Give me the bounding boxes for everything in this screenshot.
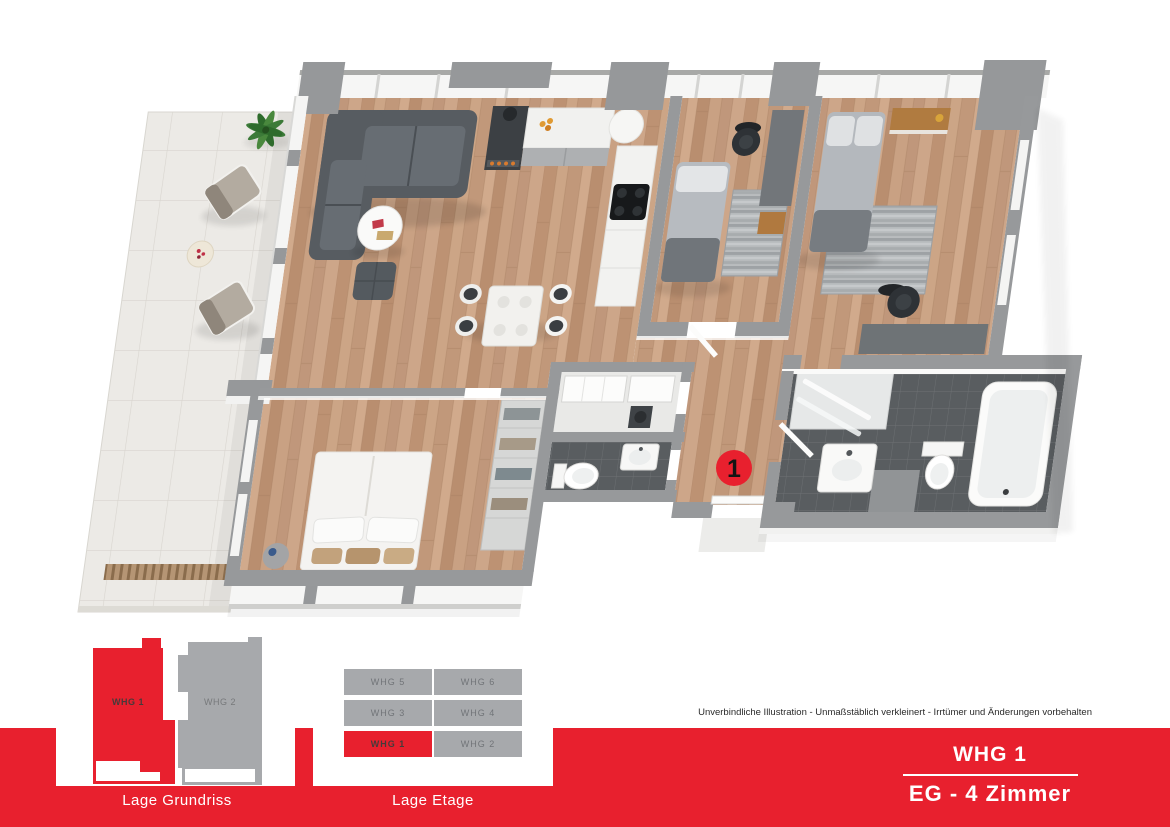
sink: [817, 444, 878, 492]
etage-cell-whg3: WHG 3: [344, 700, 432, 726]
toilet: [551, 463, 600, 489]
unit-whg2-cutout: [184, 768, 256, 783]
unit-title: WHG 1: [890, 743, 1090, 767]
unit-whg2-label: WHG 2: [204, 697, 236, 707]
desk: [858, 324, 988, 354]
etage-cell-whg4: WHG 4: [434, 700, 522, 726]
lage-etage-label: Lage Etage: [343, 792, 523, 809]
unit-whg2-notch: [178, 692, 188, 720]
unit-subtitle: EG - 4 Zimmer: [878, 781, 1102, 807]
title-divider: [903, 774, 1078, 776]
kitchen-counter: [523, 108, 615, 148]
etage-cell-whg1-active: WHG 1: [344, 731, 432, 757]
disclaimer-text: Unverbindliche Illustration - Unmaßstäbl…: [600, 707, 1092, 718]
unit-marker-badge: 1: [716, 450, 752, 486]
floor-level-grid: WHG 5 WHG 6 WHG 3 WHG 4 WHG 1 WHG 2: [344, 669, 522, 757]
etage-cell-whg6: WHG 6: [434, 669, 522, 695]
unit-whg2-shape: [178, 637, 262, 785]
etage-cell-whg2: WHG 2: [434, 731, 522, 757]
nightstand: [757, 212, 786, 234]
entrance-porch: [698, 518, 769, 552]
cooktop: [609, 184, 650, 220]
washing-machine: [628, 406, 653, 428]
entrance-door: [711, 496, 766, 504]
floorplan-sheet: 1 WHG 1 WHG 2 WHG 5 WHG 6 WHG 3 WHG 4 WH…: [0, 0, 1170, 827]
unit-marker-number: 1: [727, 455, 741, 483]
partition: [868, 470, 920, 512]
double-bed: [300, 452, 433, 570]
location-plan-diagram: WHG 1 WHG 2: [85, 630, 270, 792]
red-banner-pillar: [295, 728, 313, 786]
sideboard: [889, 108, 951, 134]
etage-cell-whg5: WHG 5: [344, 669, 432, 695]
lage-grundriss-label: Lage Grundriss: [87, 792, 267, 809]
ottoman: [352, 262, 397, 300]
floor-plan-rendering: 1: [0, 0, 1170, 660]
door-mat: [103, 564, 227, 580]
sink: [620, 444, 660, 470]
unit-whg1-label: WHG 1: [112, 697, 144, 707]
red-banner-left: [0, 728, 56, 786]
